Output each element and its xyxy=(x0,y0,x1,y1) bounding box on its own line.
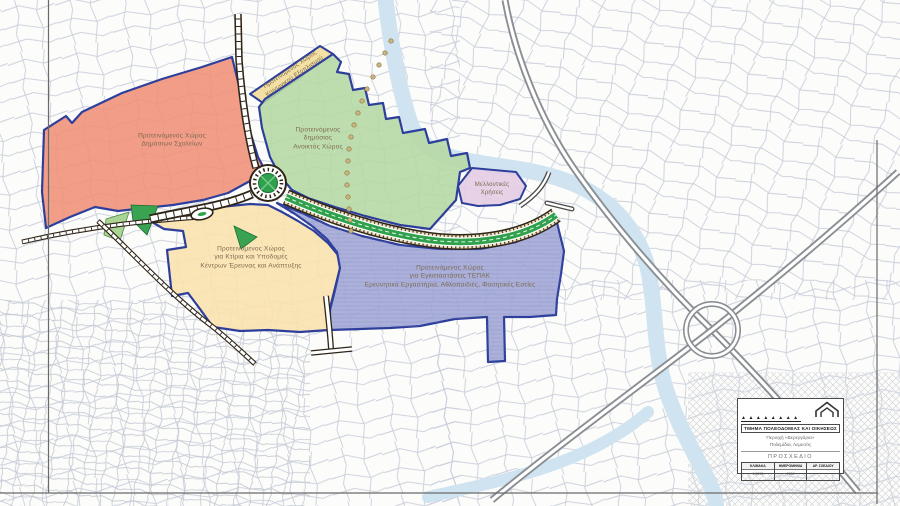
plan-area-name: Περιοχή «Βερεγγάρια» Πολεμίδια, Λεμεσός xyxy=(741,435,840,452)
zone-label-research-development: Προτεινόμενος Χώρος για Κτίρια και Υποδο… xyxy=(200,245,301,270)
central-roundabout xyxy=(250,165,286,201)
field-scale: ΚΛΙΜΑΚΑ 1:5000 xyxy=(742,463,775,480)
zone-label-tepak: Προτεινόμενος Χώρος για Εγκαταστάσεις ΤΕ… xyxy=(365,264,536,289)
zone-label-future-uses: Μελλοντικές Χρήσεις xyxy=(475,182,509,198)
ministry-logo-glyphs: ▲▲▲▲▲▲▲▲ xyxy=(741,416,801,423)
house-arrow-logo-icon xyxy=(814,401,840,423)
planning-map: Προτεινόμενος Χώρος Δημόσιων Σχολείων Πρ… xyxy=(0,0,900,506)
title-block: ▲▲▲▲▲▲▲▲ ΤΜΗΜΑ ΠΟΛΕΟΔΟΜΙΑΣ ΚΑΙ ΟΙΚΗΣΕΩΣ … xyxy=(737,398,844,474)
draft-status: ΠΡΟΣΧΕΔΙΟ xyxy=(741,452,840,462)
zone-label-public-open-space: Προτεινόμενος δημόσιος Ανοικτός Χώρος xyxy=(293,126,343,151)
department-name: ΤΜΗΜΑ ΠΟΛΕΟΔΟΜΙΑΣ ΚΑΙ ΟΙΚΗΣΕΩΣ xyxy=(741,424,840,433)
field-date: ΗΜΕΡΟΜΗΝΙΑ 2009 xyxy=(775,463,808,480)
field-drawing-number: ΑΡ. ΣΧΕΔΙΟΥ xyxy=(807,463,839,480)
title-block-fields: ΚΛΙΜΑΚΑ 1:5000 ΗΜΕΡΟΜΗΝΙΑ 2009 ΑΡ. ΣΧΕΔΙ… xyxy=(741,462,840,481)
zone-label-schools: Προτεινόμενος Χώρος Δημόσιων Σχολείων xyxy=(138,133,206,150)
